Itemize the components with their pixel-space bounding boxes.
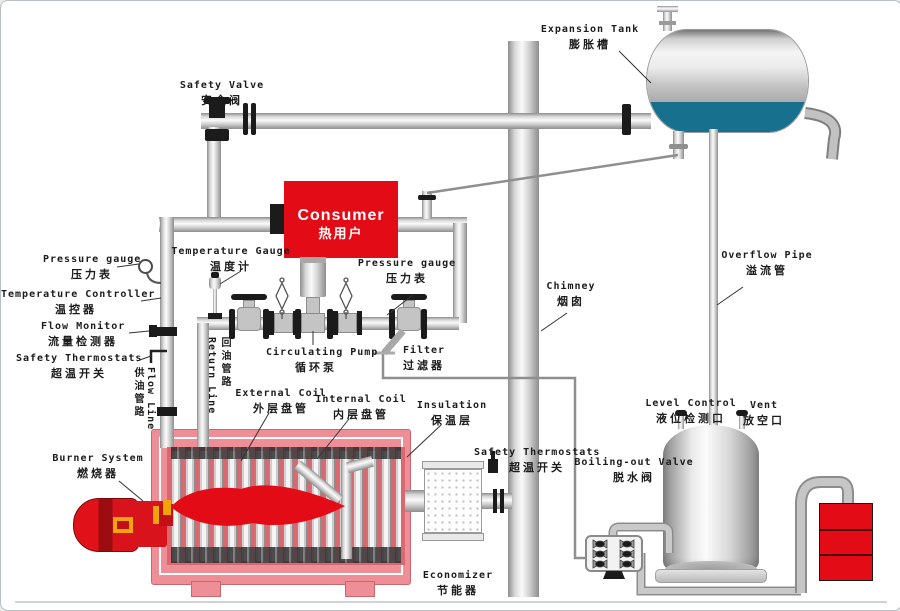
fuel-tank-box — [819, 503, 873, 581]
filter-label: Filter过滤器 — [391, 344, 457, 373]
hanger-symbol-2 — [340, 278, 352, 319]
flow-monitor-label: Flow Monitor流量检测器 — [41, 320, 125, 349]
burner-system-label: Burner System燃烧器 — [48, 452, 148, 481]
safety-valve-label: Safety Valve安全阀 — [172, 79, 272, 108]
burner-flame — [171, 485, 345, 526]
chimney-label: Chimney烟囱 — [538, 280, 604, 309]
flame-root-yellow — [163, 500, 171, 515]
expansion-tank-label: Expansion Tank膨胀槽 — [540, 23, 640, 52]
temperature-gauge-label: Temperature Gauge温度计 — [171, 245, 291, 274]
economizer-label: Economizer节能器 — [408, 569, 508, 598]
bottom-run-pipe — [641, 553, 801, 591]
diagram-canvas: Consumer 热用户 — [0, 0, 900, 611]
safety-thermostats-left-label: Safety Thermostats超温开关 — [16, 352, 142, 381]
fuel-tank-divider-1 — [820, 529, 872, 531]
insulation-label: Insulation保温层 — [402, 399, 502, 428]
temperature-controller-label: Temperature Controller温控器 — [1, 288, 151, 317]
bottom-run-pipe-outline — [641, 553, 801, 591]
valve-manifold — [585, 535, 643, 572]
overflow-pipe-label: Overflow Pipe溢流管 — [717, 249, 817, 278]
pressure-gauge-hook — [147, 273, 161, 283]
level-control-label: Level Control液位检测口 — [645, 397, 737, 426]
manifold-valves — [587, 537, 641, 570]
hanger-symbol-1 — [276, 278, 288, 319]
safety-thermostat-bracket — [151, 351, 167, 363]
return-line-label: Return Line回油管路 — [205, 337, 230, 433]
boiling-out-valve-label: Boiling-out Valve脱水阀 — [574, 456, 694, 485]
expansion-line-pipe — [427, 155, 678, 193]
manifold-stand — [603, 571, 625, 579]
circulating-pump-label: Circulating Pump循环泵 — [266, 346, 366, 375]
flow-line-label: 供油管路Flow Line — [131, 367, 156, 433]
pressure-gauge-mid-label: Pressure gauge压力表 — [357, 257, 457, 286]
vent-label: Vent放空口 — [738, 399, 790, 428]
pressure-gauge-left-label: Pressure gauge压力表 — [43, 253, 141, 282]
fuel-tank-divider-2 — [820, 554, 872, 556]
